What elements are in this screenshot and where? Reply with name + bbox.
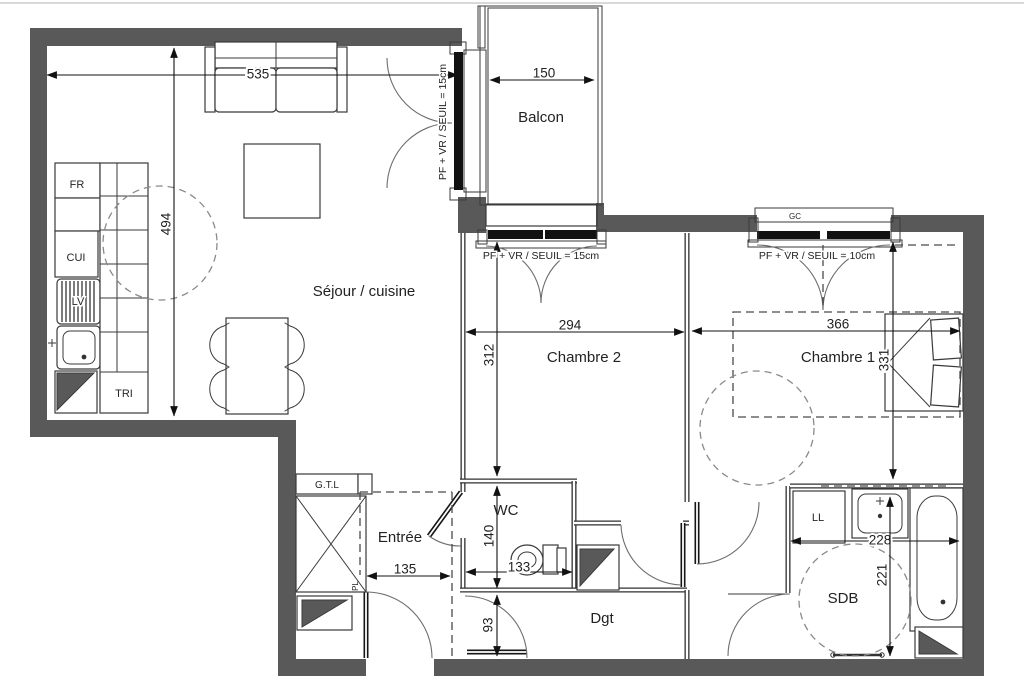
room-label-sejour: Séjour / cuisine <box>313 283 416 300</box>
balcony-structure <box>476 6 606 248</box>
kitchen <box>48 163 148 413</box>
dim-228: 228 <box>869 533 892 548</box>
dim-366: 366 <box>827 317 850 332</box>
label-cui: CUI <box>67 252 86 264</box>
fixture-labels: FR CUI LV TRI G.T.L PL LL GC <box>67 179 825 591</box>
label-tri: TRI <box>115 388 133 400</box>
floor-plan: 535 150 494 294 312 366 331 140 133 135 … <box>0 0 1024 690</box>
label-gc: GC <box>789 212 801 221</box>
pl-closet <box>296 496 366 592</box>
sofa <box>205 42 347 112</box>
dim-150: 150 <box>533 66 556 81</box>
chambre1-window <box>748 208 902 247</box>
label-ll: LL <box>812 512 824 524</box>
dim-494: 494 <box>159 212 174 235</box>
room-label-balcon: Balcon <box>518 109 564 126</box>
sdb-shaft <box>915 627 963 658</box>
coffee-table <box>244 144 320 218</box>
sejour-balcony-window <box>450 42 486 200</box>
dim-221: 221 <box>875 564 890 587</box>
interior-walls <box>460 233 963 659</box>
room-label-chambre1: Chambre 1 <box>801 349 875 366</box>
room-label-sdb: SDB <box>828 590 859 607</box>
room-label-wc: WC <box>494 502 519 519</box>
dining-set <box>210 318 305 414</box>
dim-535: 535 <box>247 67 270 82</box>
wc-shaft <box>577 545 619 590</box>
dim-135: 135 <box>394 562 417 577</box>
bathtub <box>910 488 963 631</box>
dim-133: 133 <box>508 560 531 575</box>
floor-plan-svg: 535 150 494 294 312 366 331 140 133 135 … <box>0 0 1024 690</box>
note-balcony-window: PF + VR / SEUIL = 15cm <box>437 64 449 181</box>
dim-140: 140 <box>482 525 497 548</box>
dim-331: 331 <box>877 349 892 372</box>
note-chambre2-window: PF + VR / SEUIL = 15cm <box>483 250 600 262</box>
kitchen-shaft <box>55 371 97 413</box>
dim-294: 294 <box>559 318 582 333</box>
room-label-dgt: Dgt <box>590 610 614 627</box>
entry-zone <box>296 474 452 658</box>
label-lv: LV <box>72 296 85 308</box>
label-gtl: G.T.L <box>315 480 339 491</box>
note-chambre1-window: PF + VR / SEUIL = 10cm <box>759 250 876 262</box>
balcony-railing <box>486 204 597 226</box>
bathroom-sink <box>852 489 908 538</box>
dim-93: 93 <box>481 617 496 632</box>
bed <box>885 314 963 411</box>
page-top-line <box>0 2 1024 4</box>
room-label-chambre2: Chambre 2 <box>547 349 621 366</box>
label-fr: FR <box>70 179 85 191</box>
room-label-entree: Entrée <box>378 529 422 546</box>
kitchen-sink <box>48 326 100 369</box>
entry-shaft <box>297 596 352 630</box>
label-pl: PL <box>351 581 360 591</box>
dim-312: 312 <box>482 344 497 367</box>
kitchen-counter <box>100 163 148 413</box>
